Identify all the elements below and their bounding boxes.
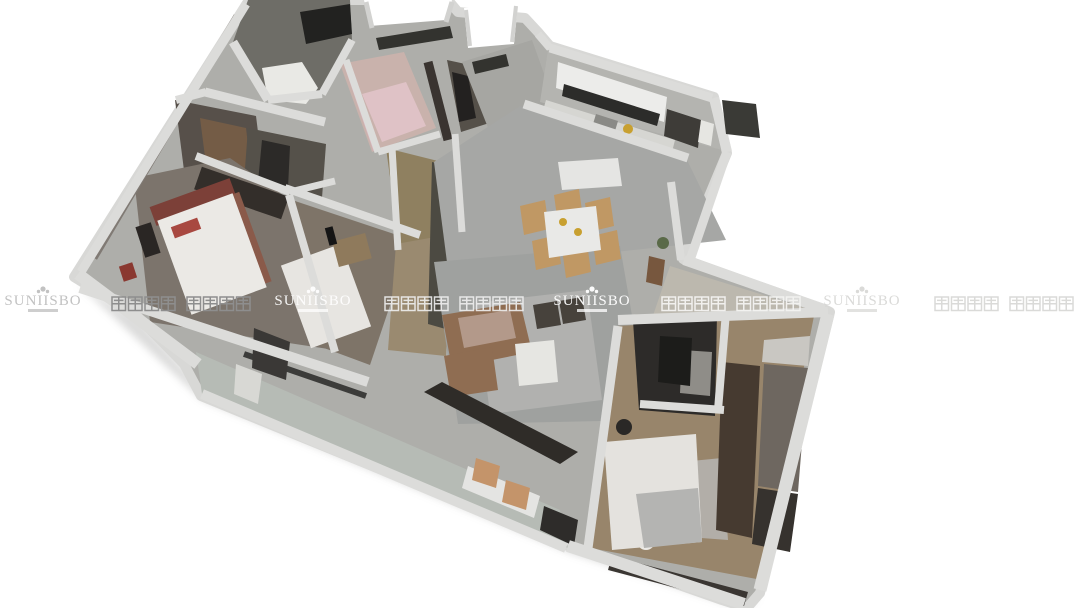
svg-text:SUNIISBO: SUNIISBO bbox=[274, 293, 351, 309]
svg-text:SUNIISBO: SUNIISBO bbox=[823, 293, 900, 309]
svg-text:SUNIISBO: SUNIISBO bbox=[553, 293, 630, 309]
svg-text:SUNIISBO: SUNIISBO bbox=[4, 293, 81, 309]
